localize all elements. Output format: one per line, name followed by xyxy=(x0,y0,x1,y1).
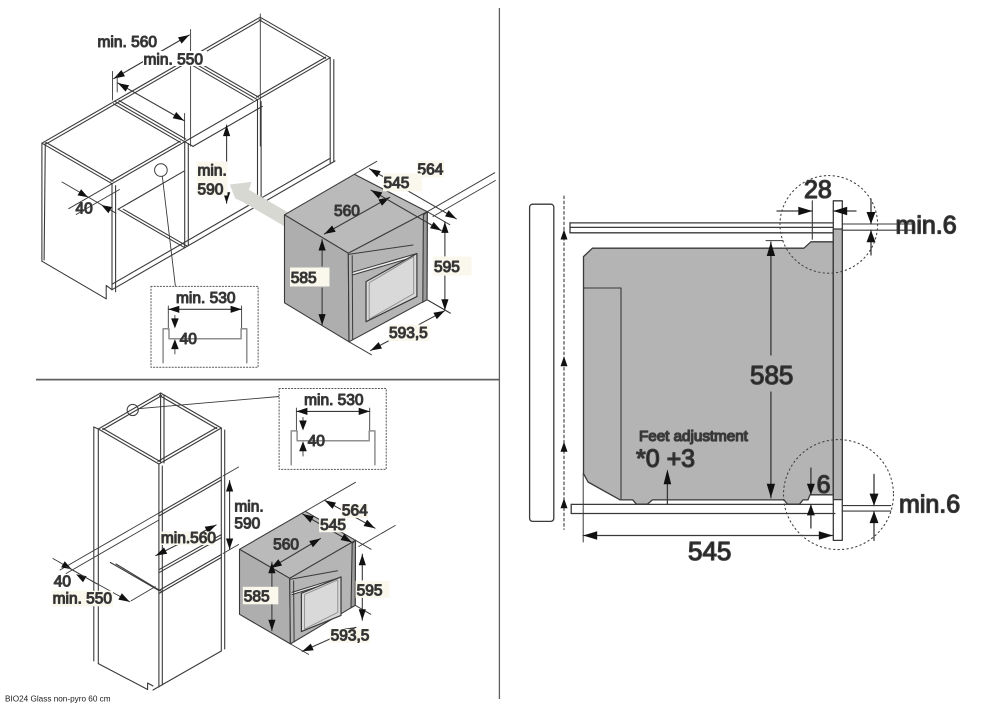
svg-text:40: 40 xyxy=(54,573,72,590)
svg-text:40: 40 xyxy=(308,433,326,450)
svg-text:min. 530: min. 530 xyxy=(176,290,236,307)
svg-text:min.6: min.6 xyxy=(896,212,957,240)
svg-text:min.560: min.560 xyxy=(161,530,217,547)
svg-text:545: 545 xyxy=(320,517,346,534)
svg-text:Feet adjustment: Feet adjustment xyxy=(639,428,749,445)
svg-text:560: 560 xyxy=(334,203,360,220)
svg-text:590: 590 xyxy=(234,516,260,533)
svg-text:40: 40 xyxy=(76,201,94,218)
svg-text:min. 530: min. 530 xyxy=(304,392,364,409)
svg-text:6: 6 xyxy=(817,471,831,499)
svg-text:min. 550: min. 550 xyxy=(53,591,113,608)
svg-text:*0 +3: *0 +3 xyxy=(636,445,695,473)
svg-text:595: 595 xyxy=(357,582,383,599)
svg-text:min.: min. xyxy=(198,163,227,180)
svg-text:585: 585 xyxy=(750,360,793,390)
svg-text:560: 560 xyxy=(273,536,299,553)
svg-text:min. 560: min. 560 xyxy=(98,34,158,51)
svg-text:40: 40 xyxy=(180,331,198,348)
svg-text:545: 545 xyxy=(384,175,410,192)
svg-text:min.6: min.6 xyxy=(899,491,960,519)
svg-text:595: 595 xyxy=(434,259,460,276)
svg-text:585: 585 xyxy=(244,588,270,605)
svg-text:min. 550: min. 550 xyxy=(144,52,204,69)
svg-text:min.: min. xyxy=(234,499,263,516)
svg-text:BIO24 Glass non-pyro 60 cm: BIO24 Glass non-pyro 60 cm xyxy=(5,695,111,704)
svg-text:545: 545 xyxy=(688,536,731,566)
svg-text:590: 590 xyxy=(198,182,224,199)
svg-text:593,5: 593,5 xyxy=(389,325,428,342)
svg-text:585: 585 xyxy=(291,270,317,287)
svg-text:593,5: 593,5 xyxy=(331,627,370,644)
